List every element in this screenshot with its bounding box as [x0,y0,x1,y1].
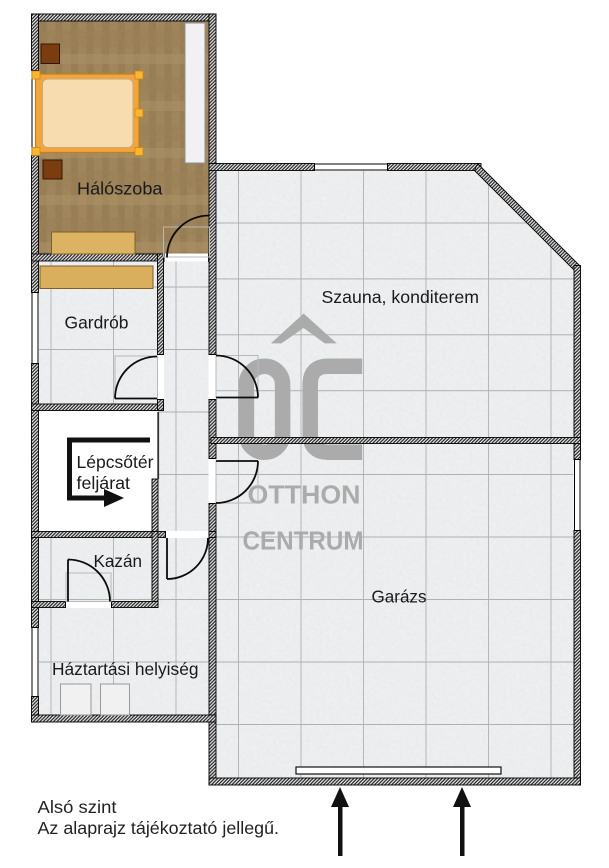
svg-text:CENTRUM: CENTRUM [243,526,364,556]
svg-text:Háztartási helyiség: Háztartási helyiség [52,659,199,679]
svg-text:OTTHON: OTTHON [248,480,361,510]
svg-text:Szauna, konditerem: Szauna, konditerem [322,287,480,307]
svg-text:Kazán: Kazán [94,551,143,571]
svg-text:Az alaprajz tájékoztató jelleg: Az alaprajz tájékoztató jellegű. [38,818,280,838]
svg-text:Alsó szint: Alsó szint [38,797,117,817]
svg-text:Gardrób: Gardrób [65,313,129,333]
svg-text:Garázs: Garázs [372,587,427,607]
svg-text:Lépcsőtér: Lépcsőtér [77,452,154,472]
svg-text:feljárat: feljárat [77,473,131,493]
svg-text:Hálószoba: Hálószoba [77,179,163,199]
